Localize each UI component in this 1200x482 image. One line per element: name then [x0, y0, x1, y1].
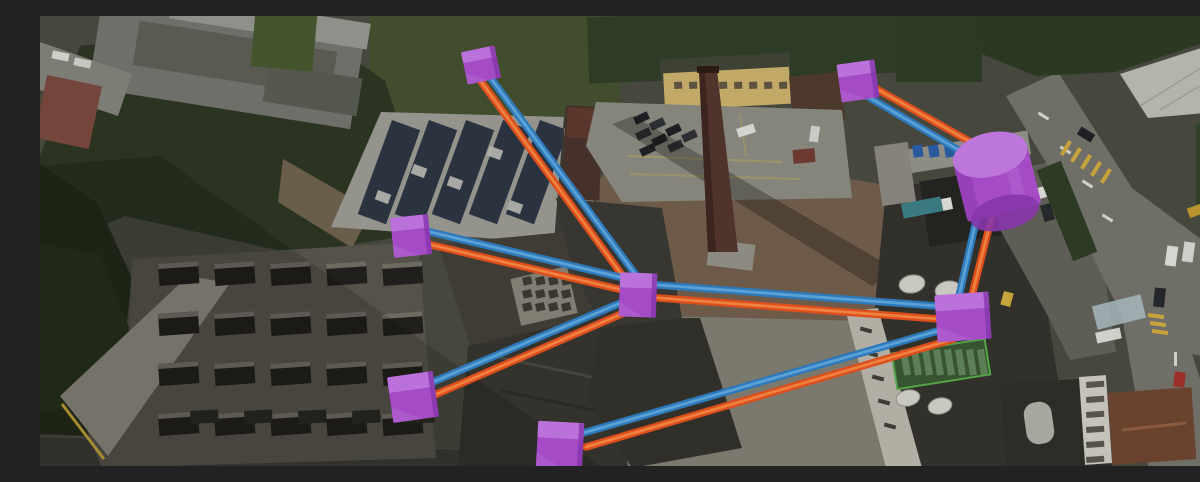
yellow-building-windows	[749, 82, 757, 89]
trees-top-mid-right	[896, 16, 982, 82]
node-site-node-mid-left	[390, 214, 432, 258]
stall-marks	[1086, 426, 1104, 433]
chimney-cap	[697, 66, 719, 73]
aerial-network-overlay	[40, 16, 1200, 466]
node-site-node-bottom-left	[387, 371, 439, 423]
node-site-node-top-right	[837, 60, 880, 103]
car	[1153, 287, 1166, 307]
stall-marks	[1086, 381, 1104, 388]
yellow-building-windows	[764, 82, 772, 89]
stall-marks	[1086, 456, 1104, 463]
container-red	[792, 148, 815, 164]
stall-marks	[1086, 411, 1104, 418]
dock-blue-panels	[928, 144, 940, 157]
stall-marks	[1086, 396, 1104, 403]
aerial-photo-network-figure	[40, 16, 1200, 466]
node-junction-center-top-face	[620, 272, 657, 288]
node-site-node-bottom-center-top-face	[537, 421, 584, 440]
trees-bright	[251, 16, 318, 72]
node-hub-right	[934, 292, 991, 343]
lane-dash	[1174, 352, 1177, 366]
aerial-photo-background	[40, 16, 1200, 466]
yellow-building-windows	[779, 82, 787, 89]
node-junction-center	[619, 272, 658, 317]
yellow-building-windows	[719, 82, 727, 89]
yellow-building-windows	[689, 82, 697, 89]
node-site-node-bottom-center	[536, 421, 584, 466]
dock-blue-panels	[912, 144, 924, 157]
car-red	[1173, 371, 1186, 387]
trees-right-edge	[1196, 124, 1200, 210]
yellow-building-windows	[734, 82, 742, 89]
stall-marks	[1086, 441, 1104, 448]
node-site-node-top-left	[461, 45, 501, 84]
yellow-building-windows	[674, 82, 682, 89]
